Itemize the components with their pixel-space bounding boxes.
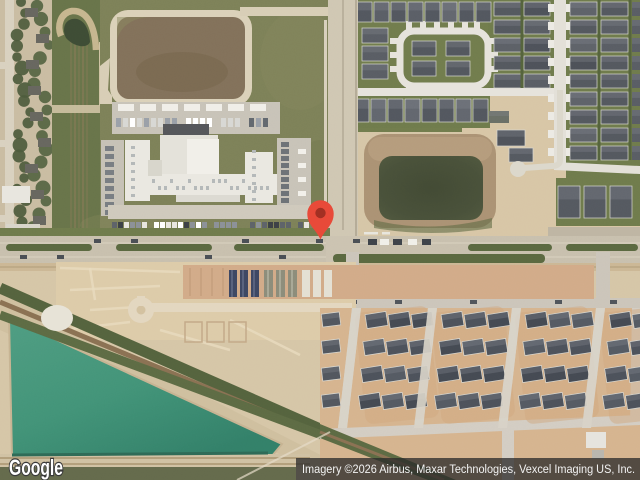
svg-text:Imagery ©2026 Airbus, Maxar Te: Imagery ©2026 Airbus, Maxar Technologies… [302, 462, 635, 476]
svg-text:Google: Google [9, 455, 63, 480]
